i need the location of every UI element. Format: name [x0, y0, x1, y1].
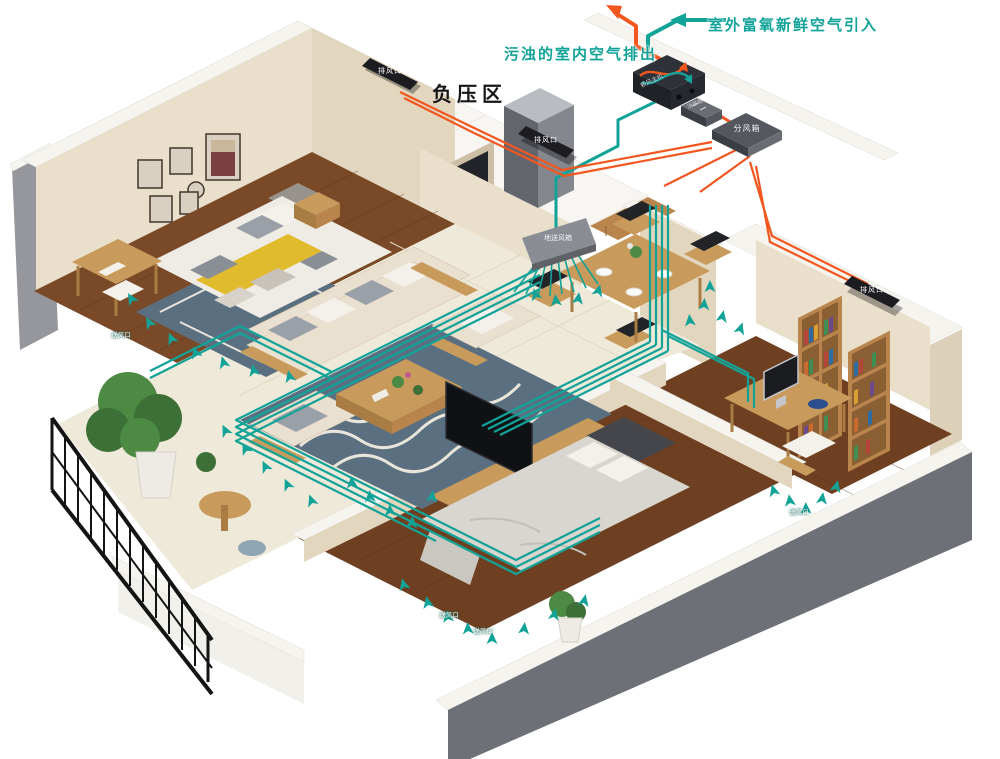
exhaust-vent-3-label: 排风口 [855, 287, 889, 294]
indoor-air-exhaust-label: 污浊的室内空气排出 [504, 47, 657, 62]
ventilation-system-diagram: { "colors": { "teal": "#12a398", "orange… [0, 0, 1000, 759]
supply-vent-bedroom2a-label: 送风口 [436, 612, 462, 619]
air-distribution-box [712, 113, 782, 157]
bookshelf-2 [848, 331, 890, 472]
floor-supply-box-label: 地送风箱 [538, 235, 578, 242]
exhaust-vent-1-label: 排风口 [373, 68, 407, 75]
air-distribution-box-label: 分风箱 [727, 125, 767, 133]
isometric-apartment-scene [0, 0, 1000, 759]
supply-vent-study-label: 送风口 [786, 509, 812, 516]
balcony-stool [238, 540, 266, 556]
fresh-air-intake-label: 室外富氧新鲜空气引入 [708, 18, 878, 33]
supply-vent-bedroom2b-label: 送风口 [470, 628, 496, 635]
mousepad [808, 399, 828, 409]
supply-vent-master-label: 送风口 [108, 332, 134, 339]
negative-pressure-zone-label: 负压区 [432, 84, 507, 104]
exhaust-vent-2-label: 排风口 [529, 137, 563, 144]
